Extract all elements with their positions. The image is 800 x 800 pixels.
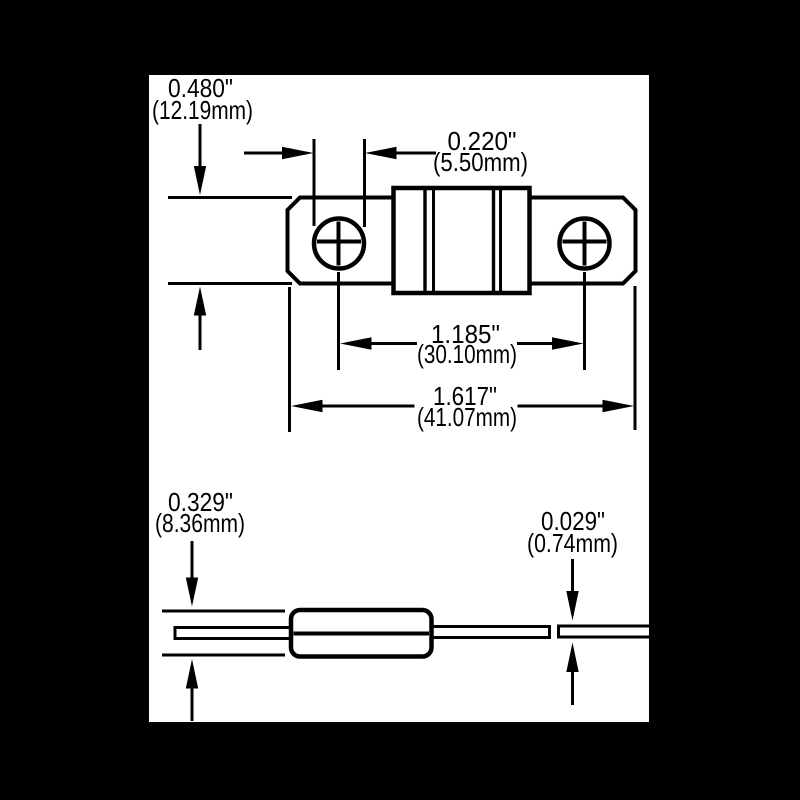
drawing-canvas: 0.480" (12.19mm) 0.220" (5.50mm) 1.185" … — [0, 0, 800, 800]
dim-hole-spacing-mm: (30.10mm) — [417, 339, 517, 369]
fuse-housing-body — [394, 188, 530, 293]
dim-overall-length-mm: (41.07mm) — [417, 402, 517, 432]
dim-terminal-thickness-mm: (0.74mm) — [527, 528, 618, 558]
dim-hole-diameter-mm: (5.50mm) — [433, 147, 528, 177]
dim-body-height-mm: (8.36mm) — [155, 508, 245, 538]
dim-plate-height-mm: (12.19mm) — [152, 95, 253, 125]
page-background: { "drawing": { "kind": "fuse-dimensional… — [0, 0, 800, 800]
